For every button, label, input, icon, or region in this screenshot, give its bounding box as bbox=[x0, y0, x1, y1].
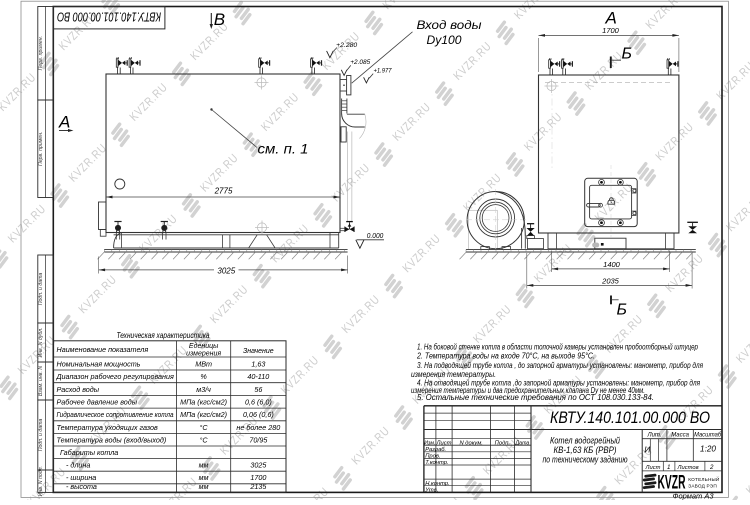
svg-text:Котел водогрейный: Котел водогрейный bbox=[550, 436, 620, 446]
svg-text:70/95: 70/95 bbox=[249, 435, 268, 444]
svg-text:°С: °С bbox=[200, 423, 209, 432]
svg-text:Лист: Лист bbox=[436, 440, 452, 446]
svg-text:1,63: 1,63 bbox=[251, 359, 265, 368]
svg-text:- высота: - высота bbox=[66, 482, 97, 491]
svg-text:Диапазон рабочего регулировани: Диапазон рабочего регулирования bbox=[56, 372, 175, 381]
svg-text:м3/ч: м3/ч bbox=[196, 385, 211, 394]
svg-text:Гидравлическое сопротивление к: Гидравлическое сопротивление котла bbox=[57, 410, 174, 419]
svg-text:2035: 2035 bbox=[601, 276, 620, 285]
svg-text:А: А bbox=[58, 113, 70, 132]
svg-text:измерения: измерения bbox=[186, 351, 221, 358]
svg-text:0.000: 0.000 bbox=[367, 233, 384, 240]
svg-text:Номинальная мощность: Номинальная мощность bbox=[57, 359, 141, 368]
svg-text:Температура воды (вход/выход): Температура воды (вход/выход) bbox=[57, 435, 167, 444]
svg-text:Пров.: Пров. bbox=[425, 454, 440, 460]
svg-text:3025: 3025 bbox=[250, 461, 267, 470]
svg-text:Взам. инв. N: Взам. инв. N bbox=[38, 366, 44, 396]
svg-text:МВт: МВт bbox=[195, 359, 212, 368]
svg-text:КВТУ.140.101.00.000 ВО: КВТУ.140.101.00.000 ВО bbox=[550, 408, 710, 427]
svg-text:2: 2 bbox=[709, 464, 714, 471]
svg-text:Изм.: Изм. bbox=[424, 440, 435, 446]
svg-text:В: В bbox=[214, 10, 225, 29]
svg-text:Перв. примен.: Перв. примен. bbox=[38, 132, 44, 166]
svg-text:%: % bbox=[200, 372, 207, 381]
svg-text:КВТУ.140.101.00.000 ВО: КВТУ.140.101.00.000 ВО bbox=[57, 10, 161, 25]
svg-text:Подп.: Подп. bbox=[495, 440, 510, 446]
svg-text:Перв. примен.: Перв. примен. bbox=[38, 36, 44, 70]
svg-text:мм: мм bbox=[199, 461, 209, 470]
svg-text:Едeницы: Едeницы bbox=[189, 342, 219, 350]
svg-text:Габариты котла: Габариты котла bbox=[60, 448, 118, 457]
svg-text:МПа (кгс/см2): МПа (кгс/см2) bbox=[180, 398, 227, 407]
svg-text:Листов: Листов bbox=[677, 465, 699, 471]
svg-text:1. На боковой стенке котла в: 1. На боковой стенке котла в области топ… bbox=[417, 342, 699, 351]
svg-text:3. На подводящей трубе котла: 3. На подводящей трубе котла , до запорн… bbox=[417, 361, 704, 370]
svg-text:1:20: 1:20 bbox=[700, 445, 716, 454]
svg-text:+1.977: +1.977 bbox=[374, 68, 392, 75]
svg-text:Лит.: Лит. bbox=[646, 432, 661, 438]
svg-text:Масса: Масса bbox=[671, 432, 689, 438]
svg-text:Формат А3: Формат А3 bbox=[673, 494, 714, 500]
svg-text:не более 280: не более 280 bbox=[236, 423, 280, 432]
svg-text:Температура уходящих газов: Температура уходящих газов bbox=[57, 423, 159, 432]
svg-text:Наименование показателя: Наименование показателя bbox=[57, 345, 149, 354]
svg-text:Н.контр.: Н.контр. bbox=[425, 481, 450, 487]
svg-text:МПа (кгс/см2): МПа (кгс/см2) bbox=[180, 410, 227, 419]
svg-text:1700: 1700 bbox=[602, 26, 620, 35]
svg-text:мм: мм bbox=[199, 482, 209, 491]
svg-text:- длина: - длина bbox=[66, 461, 90, 470]
svg-text:2. Температура воды на входе: 2. Температура воды на входе 70°С, на вы… bbox=[416, 352, 595, 361]
svg-text:Вход воды: Вход воды bbox=[417, 20, 483, 32]
svg-text:КОТЕЛЬНЫЙ: КОТЕЛЬНЫЙ bbox=[688, 475, 719, 482]
svg-text:Дата: Дата bbox=[514, 440, 530, 446]
svg-text:3025: 3025 bbox=[217, 266, 235, 275]
svg-text:2775: 2775 bbox=[214, 186, 233, 195]
svg-text:Б: Б bbox=[622, 46, 632, 63]
svg-text:Расход воды: Расход воды bbox=[57, 385, 100, 394]
svg-text:Техническая характеристика: Техническая характеристика bbox=[117, 331, 210, 340]
svg-text:N докум.: N докум. bbox=[459, 440, 482, 446]
svg-text:Т.контр.: Т.контр. bbox=[425, 460, 448, 466]
svg-text:°С: °С bbox=[200, 435, 209, 444]
svg-text:Лист: Лист bbox=[645, 465, 661, 471]
svg-text:Рабочее давление воды: Рабочее давление воды bbox=[57, 398, 138, 407]
svg-text:И: И bbox=[644, 445, 651, 455]
svg-text:Подп. и дата: Подп. и дата bbox=[38, 273, 44, 306]
svg-text:Б: Б bbox=[617, 301, 627, 318]
svg-text:56: 56 bbox=[254, 385, 262, 394]
svg-text:2135: 2135 bbox=[249, 482, 267, 491]
svg-text:40-110: 40-110 bbox=[247, 372, 269, 381]
svg-text:Разраб.: Разраб. bbox=[425, 447, 446, 453]
svg-text:Значение: Значение bbox=[243, 348, 274, 355]
svg-text:А: А bbox=[605, 9, 617, 28]
svg-text:0,6 (6,0): 0,6 (6,0) bbox=[245, 398, 272, 407]
svg-text:по техническому заданию: по техническому заданию bbox=[543, 455, 628, 465]
svg-text:0,06 (0,6): 0,06 (0,6) bbox=[243, 410, 274, 419]
svg-text:Подп. и дата: Подп. и дата bbox=[38, 419, 44, 452]
svg-text:+2.085: +2.085 bbox=[350, 59, 370, 66]
svg-text:Dy100: Dy100 bbox=[427, 35, 463, 47]
svg-text:KVZR: KVZR bbox=[658, 472, 686, 493]
svg-text:5. Остальные технические треб: 5. Остальные технические требования по О… bbox=[417, 393, 654, 402]
svg-text:Инв. N дубл.: Инв. N дубл. bbox=[38, 327, 44, 357]
svg-text:см. п. 1: см. п. 1 bbox=[258, 141, 309, 157]
svg-text:Инв. N подл.: Инв. N подл. bbox=[38, 466, 44, 496]
svg-text:Утв.: Утв. bbox=[424, 487, 438, 493]
svg-text:ЗАВОД РЭП: ЗАВОД РЭП bbox=[688, 484, 717, 489]
svg-text:+2.280: +2.280 bbox=[336, 42, 357, 49]
svg-text:1400: 1400 bbox=[603, 260, 621, 269]
svg-text:Масштаб: Масштаб bbox=[694, 432, 722, 438]
svg-text:1: 1 bbox=[667, 464, 670, 471]
